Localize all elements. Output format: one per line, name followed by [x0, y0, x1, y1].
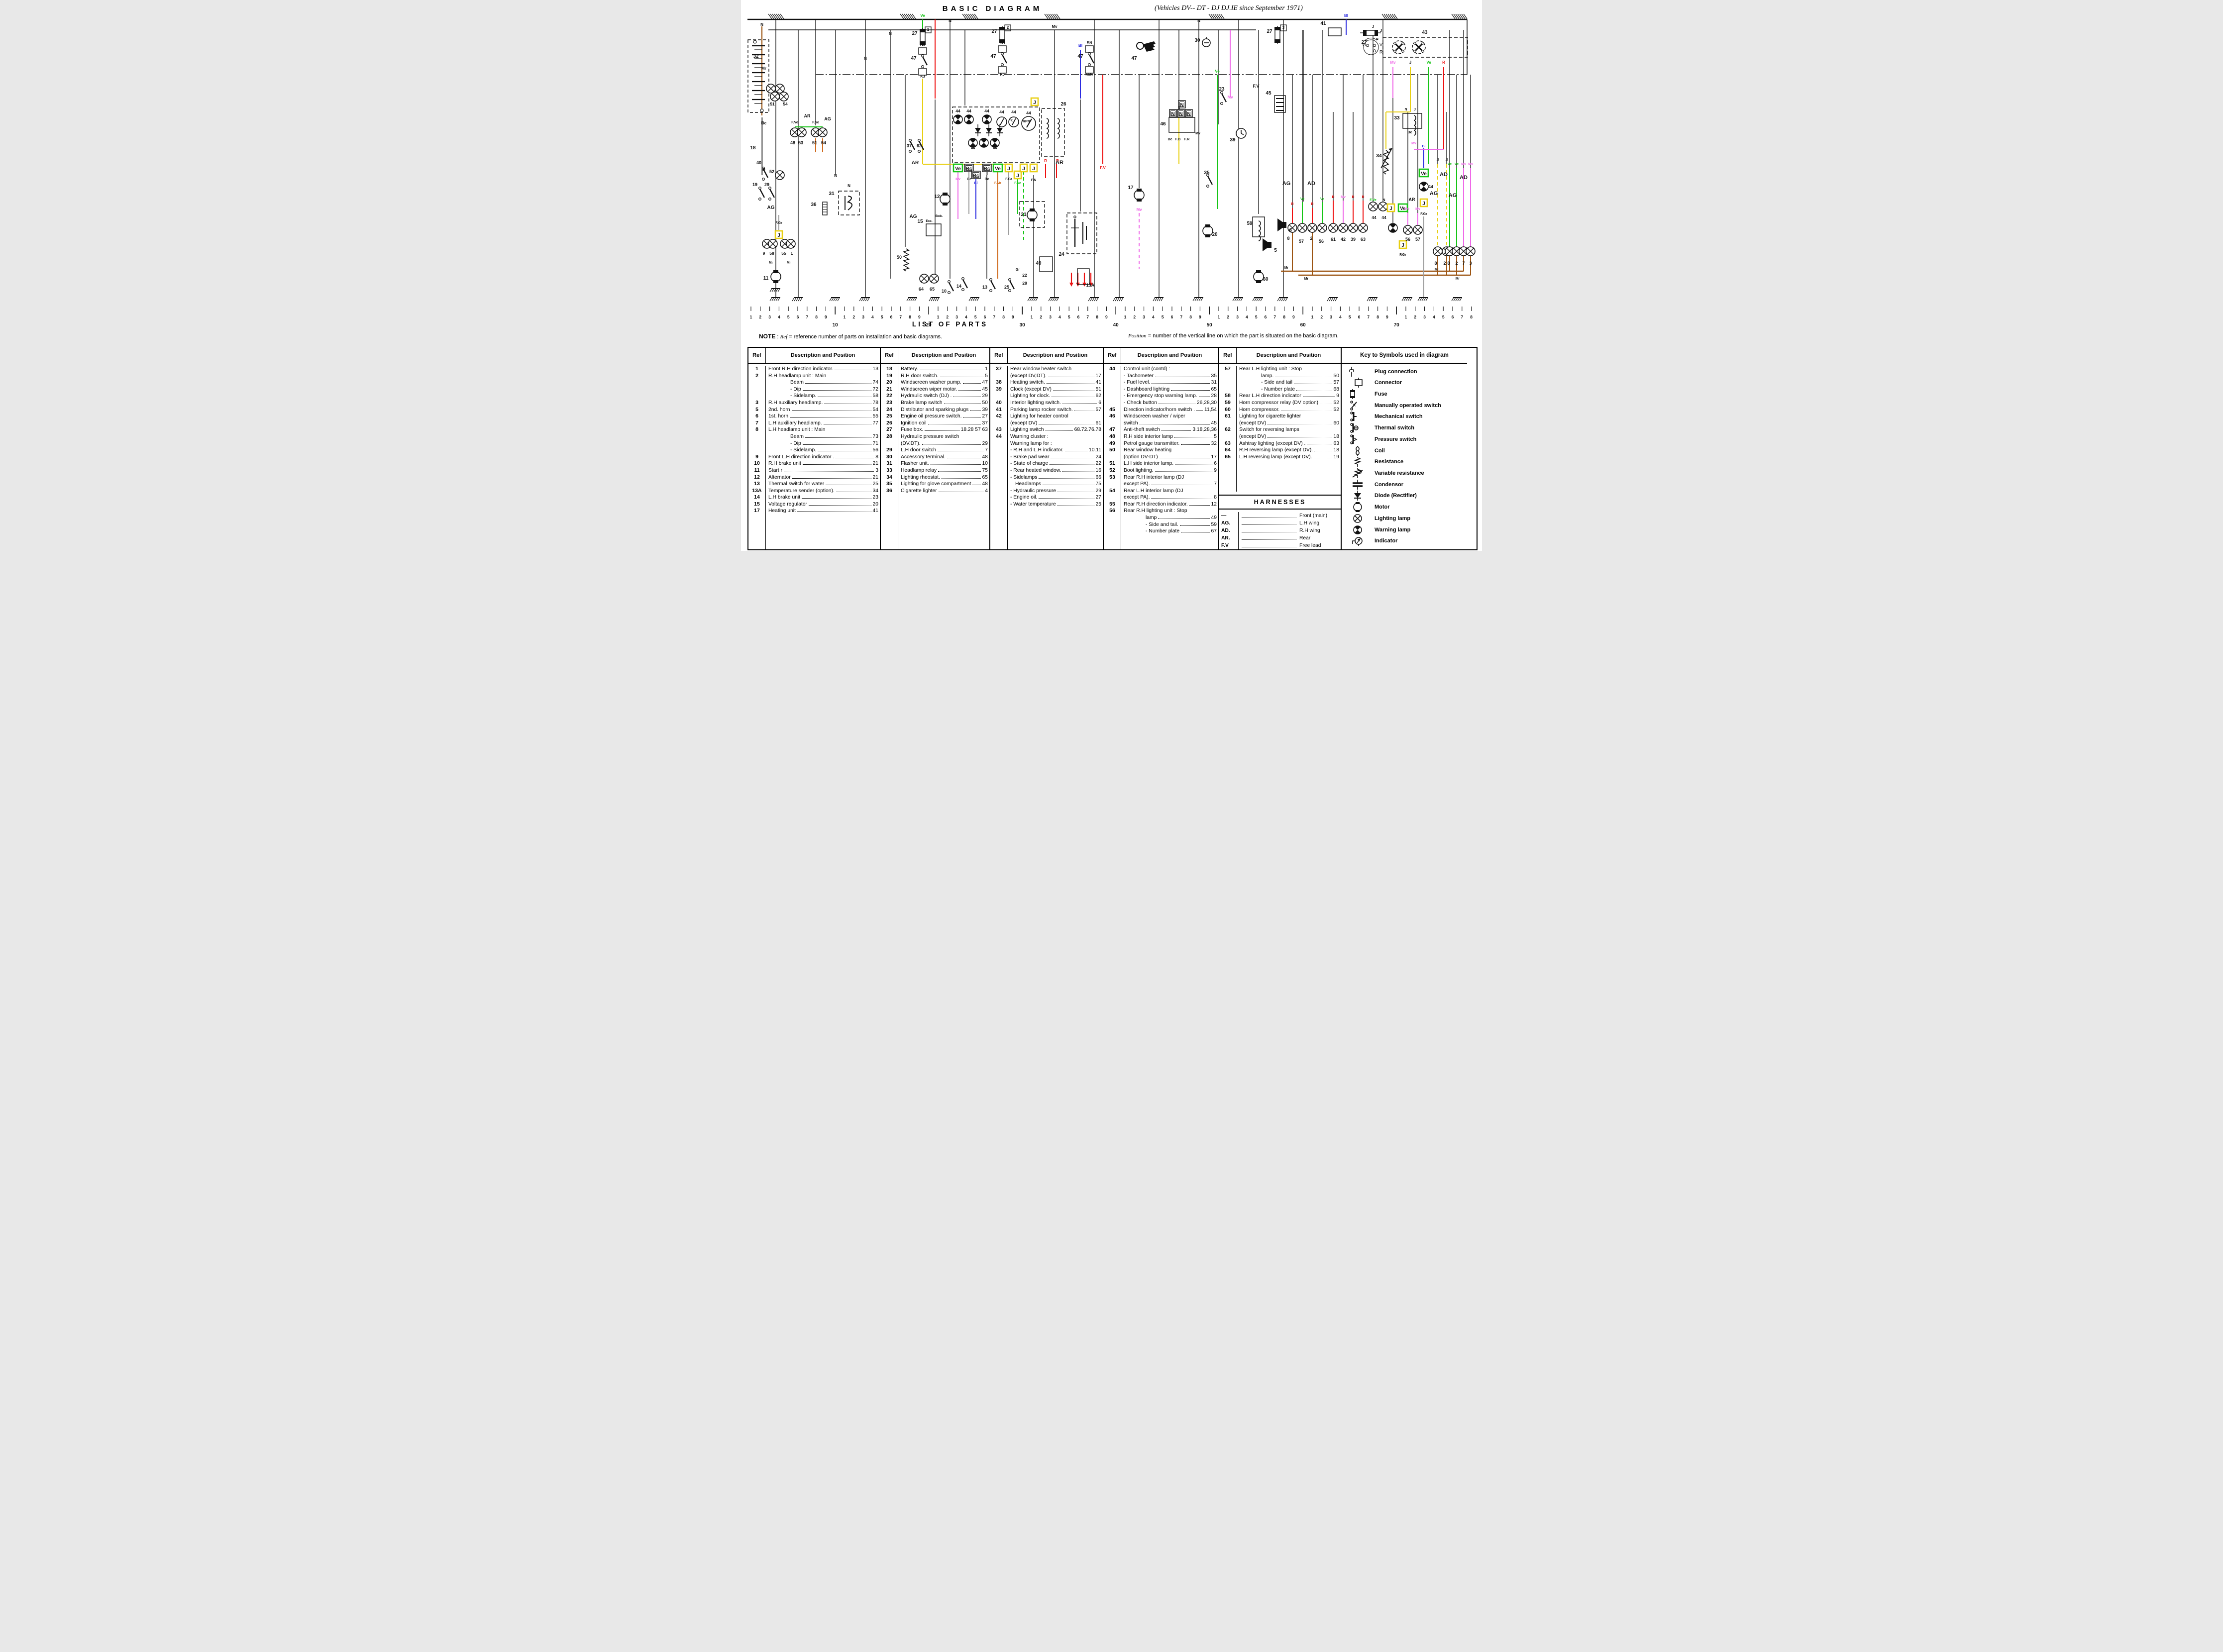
- symbol-label: Motor: [1375, 504, 1390, 510]
- svg-text:F.Gr: F.Gr: [775, 221, 782, 225]
- part-ref: 43: [990, 426, 1008, 433]
- svg-text:AG: AG: [767, 205, 775, 210]
- table-row: 63Ashtray lighting (except DV) .63: [1219, 440, 1341, 447]
- table-row: 26Ignition coil37: [881, 420, 989, 427]
- svg-text:AG: AG: [824, 116, 831, 121]
- svg-text:5: 5: [1442, 314, 1445, 319]
- basic-wiring-diagram: OVR°CRPMVeBcBcBcVeJJJJJJJVeVeJJNNNN1832M…: [741, 0, 1482, 329]
- svg-text:44: 44: [1372, 215, 1376, 220]
- table-row: 57Rear L.H lighting unit : Stoplamp.50- …: [1219, 366, 1341, 393]
- table-row: 9Front L.H direction indicator .8: [748, 454, 880, 461]
- table-row: 44Warning cluster :Warning lamp for :- R…: [990, 433, 1103, 508]
- svg-text:44: 44: [966, 108, 971, 113]
- part-description: Rear window heating(option DV-DT)17: [1121, 447, 1218, 460]
- part-description: Rear R.H interior lamp (DJexcept PA).7: [1121, 474, 1218, 488]
- svg-text:36: 36: [811, 202, 817, 207]
- svg-text:Ve: Ve: [1215, 69, 1220, 74]
- harness-row: AG.L.H wing: [1219, 519, 1341, 527]
- svg-text:2: 2: [1443, 261, 1446, 266]
- part-ref: 54: [1104, 488, 1121, 501]
- part-description: Horn compressor.52: [1237, 407, 1341, 413]
- table-row: 54Rear L.H interior lamp (DJexcept PA).8: [1104, 488, 1218, 501]
- svg-text:8: 8: [815, 314, 818, 319]
- svg-text:Bl: Bl: [1422, 145, 1426, 148]
- parts-column-4: RefDescription and Position44Control uni…: [1104, 348, 1219, 549]
- svg-text:8: 8: [1447, 261, 1450, 266]
- svg-text:9: 9: [918, 314, 921, 319]
- svg-text:R: R: [1352, 196, 1354, 199]
- harness-row: F.VFree lead: [1219, 542, 1341, 549]
- svg-text:2: 2: [852, 314, 855, 319]
- harness-row: AR.Rear: [1219, 534, 1341, 542]
- parts-column-3: RefDescription and Position37Rear window…: [990, 348, 1104, 549]
- table-row: 13Thermal switch for water25: [748, 481, 880, 488]
- svg-text:8: 8: [1434, 261, 1437, 266]
- svg-text:Mr: Mr: [787, 261, 791, 265]
- svg-text:Mv: Mv: [1341, 196, 1346, 199]
- svg-text:10: 10: [942, 289, 947, 294]
- plug-connection-icon: [1347, 367, 1375, 377]
- part-description: Ignition coil37: [898, 420, 989, 427]
- part-description: R.H brake unit21: [766, 460, 880, 467]
- svg-text:AR: AR: [1056, 160, 1063, 166]
- part-description: Accessory terminal.48: [898, 454, 989, 461]
- part-ref: 3: [748, 400, 766, 407]
- svg-text:1: 1: [1124, 314, 1127, 319]
- part-description: Fuse box.18.28 57 63: [898, 426, 989, 433]
- table-row: 24Distributor and sparking plugs39: [881, 407, 989, 413]
- symbol-row: Motor: [1347, 502, 1465, 513]
- table-row: 30Accessory terminal.48: [881, 454, 989, 461]
- svg-text:F.N: F.N: [920, 43, 926, 47]
- svg-text:N: N: [1197, 18, 1200, 23]
- part-description: Flasher unit.10: [898, 460, 989, 467]
- table-row: 47Anti-theft switch3.18,28,36: [1104, 426, 1218, 433]
- condensor-icon: [1347, 480, 1375, 490]
- part-description: Lighting for heater control(except DV)61: [1008, 413, 1103, 426]
- svg-text:5: 5: [881, 314, 883, 319]
- warning-lamp-icon: [1347, 525, 1375, 535]
- svg-text:49: 49: [1036, 261, 1042, 266]
- part-ref: 28: [881, 433, 898, 447]
- symbol-row: Coil: [1347, 445, 1465, 456]
- parts-column-header: RefDescription and Position: [1219, 348, 1341, 364]
- svg-text:4: 4: [871, 314, 874, 319]
- symbol-row: Pressure switch: [1347, 434, 1465, 444]
- symbol-label: Diode (Rectifier): [1375, 493, 1417, 499]
- svg-text:5: 5: [1068, 314, 1070, 319]
- svg-text:Mr: Mr: [1435, 268, 1439, 272]
- symbol-row: Indicator: [1347, 536, 1465, 546]
- part-ref: 63: [1219, 440, 1237, 447]
- table-row: 25Engine oil pressure switch.27: [881, 413, 989, 420]
- svg-text:7: 7: [1273, 314, 1276, 319]
- part-ref: 23: [881, 400, 898, 407]
- svg-text:3: 3: [1236, 314, 1239, 319]
- svg-text:6: 6: [1265, 314, 1267, 319]
- table-row: 64R.H reversing lamp (except DV).18: [1219, 447, 1341, 454]
- part-ref: 31: [881, 460, 898, 467]
- part-description: Headlamp relay75: [898, 467, 989, 474]
- svg-text:Ve: Ve: [1426, 60, 1431, 65]
- table-row: 18Battery.1: [881, 366, 989, 373]
- svg-text:R: R: [1442, 60, 1445, 65]
- part-description: Clock (except DV)51Lighting for clock.62: [1008, 386, 1103, 400]
- part-description: Lighting rheostat.65: [898, 474, 989, 481]
- svg-text:13: 13: [982, 285, 987, 290]
- table-row: 48R.H side interior lamp5: [1104, 433, 1218, 440]
- svg-text:1: 1: [1405, 314, 1407, 319]
- indicator-icon: [1347, 536, 1375, 546]
- diode-icon: [1347, 491, 1375, 501]
- part-description: Boot lighting.9: [1121, 467, 1218, 474]
- part-description: L.H auxiliary headlamp.77: [766, 420, 880, 427]
- position-note: Position = number of the vertical line o…: [1128, 333, 1339, 339]
- part-ref: 59: [1219, 400, 1237, 407]
- table-row: 14L.H brake unit23: [748, 494, 880, 501]
- svg-text:6: 6: [1077, 314, 1080, 319]
- svg-text:8: 8: [909, 314, 911, 319]
- part-ref: 50: [1104, 447, 1121, 460]
- svg-text:1: 1: [937, 314, 940, 319]
- table-row: 51L.H side interior lamp.6: [1104, 460, 1218, 467]
- svg-text:5: 5: [1162, 314, 1164, 319]
- svg-text:Ve: Ve: [1421, 171, 1427, 177]
- svg-text:AD: AD: [1440, 172, 1448, 178]
- part-description: Anti-theft switch3.18,28,36: [1121, 426, 1218, 433]
- svg-text:Bc: Bc: [984, 166, 990, 172]
- svg-text:7: 7: [1180, 314, 1182, 319]
- part-description: Rear window heater switch(except DV,DT).…: [1008, 366, 1103, 379]
- svg-text:Mv: Mv: [1468, 163, 1473, 166]
- svg-text:F.N: F.N: [1087, 41, 1092, 45]
- part-ref: 24: [881, 407, 898, 413]
- svg-text:V: V: [1379, 42, 1382, 47]
- svg-text:J: J: [1022, 166, 1025, 172]
- svg-text:J: J: [1372, 24, 1374, 29]
- svg-text:18: 18: [750, 145, 756, 151]
- svg-text:Bc: Bc: [761, 121, 767, 125]
- svg-text:56: 56: [1319, 239, 1324, 244]
- symbol-label: Lighting lamp: [1375, 516, 1410, 521]
- svg-text:F.Gr: F.Gr: [1005, 178, 1012, 181]
- svg-text:9: 9: [1105, 314, 1108, 319]
- svg-text:Mv: Mv: [1404, 207, 1409, 211]
- svg-text:27: 27: [1361, 40, 1367, 45]
- svg-text:3: 3: [862, 314, 864, 319]
- svg-text:8: 8: [1096, 314, 1098, 319]
- part-ref: 19: [881, 373, 898, 380]
- part-description: Lighting switch68.72.76.78: [1008, 426, 1103, 433]
- list-of-parts-table: RefDescription and Position1Front R.H di…: [747, 347, 1478, 550]
- svg-text:11: 11: [763, 276, 769, 281]
- part-description: 1st. horn55: [766, 413, 880, 420]
- part-description: 2nd. horn54: [766, 407, 880, 413]
- svg-text:55: 55: [781, 251, 786, 256]
- part-description: Rear L.H lighting unit : Stoplamp.50- Si…: [1237, 366, 1341, 393]
- svg-text:F.Gr: F.Gr: [1399, 253, 1406, 257]
- svg-text:2: 2: [946, 314, 949, 319]
- svg-text:F.N: F.N: [1031, 179, 1037, 182]
- part-ref: 62: [1219, 426, 1237, 440]
- harness-row: —Front (main): [1219, 512, 1341, 519]
- svg-text:R: R: [1291, 203, 1293, 206]
- svg-text:5: 5: [974, 314, 977, 319]
- svg-text:3: 3: [1049, 314, 1052, 319]
- svg-text:J: J: [1422, 201, 1425, 206]
- part-ref: 13: [748, 481, 766, 488]
- svg-text:Ve: Ve: [1455, 163, 1459, 166]
- svg-text:64: 64: [919, 287, 924, 292]
- svg-text:3: 3: [1282, 25, 1285, 30]
- part-description: Interior lighting switch.6: [1008, 400, 1103, 407]
- part-ref: 5: [748, 407, 766, 413]
- part-ref: 25: [881, 413, 898, 420]
- symbol-label: Manually operated switch: [1375, 403, 1441, 409]
- part-description: Rear R.H lighting unit : Stoplamp49- Sid…: [1121, 508, 1218, 534]
- svg-text:J: J: [1032, 166, 1035, 172]
- part-description: L.H brake unit23: [766, 494, 880, 501]
- table-row: 37Rear window heater switch(except DV,DT…: [990, 366, 1103, 379]
- part-ref: 14: [748, 494, 766, 501]
- svg-text:37: 37: [907, 143, 912, 148]
- svg-text:AG: AG: [1282, 181, 1291, 187]
- svg-text:N: N: [1187, 111, 1190, 117]
- parts-column-1: RefDescription and Position1Front R.H di…: [748, 348, 881, 549]
- part-description: Thermal switch for water25: [766, 481, 880, 488]
- table-row: 21Windscreen wiper motor.45: [881, 386, 989, 393]
- svg-text:9: 9: [825, 314, 827, 319]
- symbol-label: Fuse: [1375, 391, 1387, 397]
- part-ref: 44: [990, 433, 1008, 508]
- part-description: Voltage regulator20: [766, 501, 880, 508]
- svg-text:45: 45: [1266, 91, 1271, 96]
- key-to-symbols-column: Key to Symbols used in diagram Plug conn…: [1342, 348, 1467, 549]
- svg-text:3: 3: [1330, 314, 1332, 319]
- part-ref: 49: [1104, 440, 1121, 447]
- part-ref: 36: [881, 488, 898, 495]
- svg-text:24: 24: [1059, 252, 1064, 257]
- symbol-row: Plug connection: [1347, 366, 1465, 377]
- table-row: 62Switch for reversing lamps(except DV)1…: [1219, 426, 1341, 440]
- part-ref: 41: [990, 407, 1008, 413]
- svg-text:8: 8: [1002, 314, 1005, 319]
- svg-text:Gr: Gr: [1016, 268, 1020, 272]
- part-ref: 27: [881, 426, 898, 433]
- svg-text:7: 7: [1462, 261, 1465, 266]
- svg-text:F.N: F.N: [1000, 41, 1005, 45]
- symbol-label: Warning lamp: [1375, 527, 1410, 533]
- part-description: Rear L.H interior lamp (DJexcept PA).8: [1121, 488, 1218, 501]
- mechanical-switch-icon: [1347, 412, 1375, 421]
- part-ref: 18: [881, 366, 898, 373]
- svg-text:Ve: Ve: [920, 13, 925, 18]
- part-ref: 48: [1104, 433, 1121, 440]
- part-description: Windscreen wiper motor.45: [898, 386, 989, 393]
- parts-column-header: RefDescription and Position: [748, 348, 880, 364]
- svg-text:F.Ve: F.Ve: [812, 121, 819, 124]
- svg-text:20: 20: [1212, 232, 1218, 237]
- svg-text:42: 42: [1341, 237, 1346, 242]
- part-description: Ashtray lighting (except DV) .63: [1237, 440, 1341, 447]
- svg-text:44: 44: [1381, 215, 1386, 220]
- svg-text:Bc: Bc: [1168, 138, 1172, 141]
- svg-text:2: 2: [1455, 261, 1458, 266]
- table-row: 42Lighting for heater control(except DV)…: [990, 413, 1103, 426]
- svg-text:19: 19: [752, 182, 757, 187]
- part-description: Heating switch.41: [1008, 379, 1103, 386]
- part-description: R.H auxiliary headlamp.78: [766, 400, 880, 407]
- svg-text:50: 50: [897, 255, 902, 260]
- table-row: 53Rear R.H interior lamp (DJexcept PA).7: [1104, 474, 1218, 488]
- svg-text:4: 4: [1152, 314, 1155, 319]
- svg-text:2: 2: [1227, 314, 1229, 319]
- part-description: Petrol gauge transmitter.32: [1121, 440, 1218, 447]
- svg-text:Bob.: Bob.: [936, 214, 943, 218]
- svg-text:40: 40: [756, 160, 761, 165]
- table-row: 41Parking lamp rocker switch.57: [990, 407, 1103, 413]
- svg-text:1: 1: [927, 27, 930, 32]
- svg-text:60: 60: [1263, 277, 1269, 282]
- svg-text:27: 27: [1267, 29, 1272, 34]
- svg-text:F.B: F.B: [1175, 138, 1181, 141]
- svg-text:R: R: [1311, 203, 1313, 206]
- svg-text:1: 1: [1218, 314, 1220, 319]
- part-ref: 34: [881, 474, 898, 481]
- part-ref: 26: [881, 420, 898, 427]
- harnesses-section: HARNESSES—Front (main)AG.L.H wingAD.R.H …: [1219, 495, 1341, 549]
- svg-text:39: 39: [1351, 237, 1356, 242]
- svg-text:AG: AG: [1430, 191, 1438, 197]
- svg-text:4: 4: [1339, 314, 1342, 319]
- table-row: 20Windscreen washer pump.47: [881, 379, 989, 386]
- svg-text:AD: AD: [1460, 175, 1468, 181]
- part-ref: 7: [748, 420, 766, 427]
- part-ref: 29: [881, 447, 898, 454]
- part-ref: 8: [748, 426, 766, 453]
- part-description: R.H headlamp unit : MainBeam74- Dip72- S…: [766, 373, 880, 400]
- part-description: Hydraulic switch (DJ) .29: [898, 393, 989, 400]
- symbol-label: Indicator: [1375, 538, 1397, 544]
- svg-text:J: J: [1033, 100, 1036, 105]
- svg-text:2: 2: [759, 314, 761, 319]
- svg-text:47: 47: [911, 56, 917, 61]
- fuse-icon: [1347, 389, 1375, 399]
- part-ref: 22: [881, 393, 898, 400]
- svg-text:54: 54: [821, 140, 826, 145]
- svg-text:44: 44: [1026, 110, 1031, 115]
- svg-text:47: 47: [1131, 56, 1137, 61]
- svg-text:41: 41: [1320, 21, 1326, 26]
- part-description: Lighting for cigarette lighter(except DV…: [1237, 413, 1341, 426]
- svg-text:N: N: [1179, 111, 1182, 117]
- symbol-row: Variable resistance: [1347, 468, 1465, 478]
- table-row: 23Brake lamp switch50: [881, 400, 989, 407]
- svg-text:Bc: Bc: [985, 178, 989, 181]
- part-ref: 15: [748, 501, 766, 508]
- part-description: Parking lamp rocker switch.57: [1008, 407, 1103, 413]
- svg-text:Bl: Bl: [974, 182, 978, 185]
- svg-text:61: 61: [1331, 237, 1336, 242]
- part-ref: 60: [1219, 407, 1237, 413]
- svg-text:70: 70: [1394, 322, 1400, 328]
- svg-text:44: 44: [999, 109, 1004, 114]
- symbol-label: Resistance: [1375, 459, 1403, 465]
- parts-column-header: RefDescription and Position: [990, 348, 1103, 364]
- svg-text:3: 3: [955, 314, 958, 319]
- svg-text:5: 5: [1349, 314, 1351, 319]
- svg-text:29: 29: [764, 182, 769, 187]
- part-description: Engine oil pressure switch.27: [898, 413, 989, 420]
- lighting-lamp-icon: [1347, 514, 1375, 523]
- svg-text:58: 58: [769, 251, 774, 256]
- svg-text:5: 5: [787, 314, 790, 319]
- svg-text:3: 3: [1423, 314, 1426, 319]
- svg-text:F.Ve: F.Ve: [791, 121, 798, 124]
- part-ref: 46: [1104, 413, 1121, 426]
- table-row: 49Petrol gauge transmitter.32: [1104, 440, 1218, 447]
- svg-text:N: N: [834, 174, 837, 178]
- part-ref: 21: [881, 386, 898, 393]
- svg-text:AR: AR: [912, 160, 919, 166]
- svg-text:8: 8: [1189, 314, 1192, 319]
- table-row: 43Lighting switch68.72.76.78: [990, 426, 1103, 433]
- svg-text:F.Gr: F.Gr: [1420, 212, 1427, 216]
- svg-text:4: 4: [778, 314, 780, 319]
- symbol-row: Thermal switch: [1347, 423, 1465, 433]
- svg-text:51: 51: [812, 140, 817, 145]
- part-description: L.H headlamp unit : MainBeam73- Dip71- S…: [766, 426, 880, 453]
- svg-text:6: 6: [1171, 314, 1173, 319]
- svg-text:R: R: [762, 168, 765, 172]
- table-row: 65L.H reversing lamp (except DV).19: [1219, 454, 1341, 461]
- svg-text:2: 2: [1040, 314, 1042, 319]
- part-description: Temperature sender (option).34: [766, 488, 880, 495]
- table-row: 33Headlamp relay75: [881, 467, 989, 474]
- part-description: L.H side interior lamp.6: [1121, 460, 1218, 467]
- part-description: Lighting for glove compartment48: [898, 481, 989, 488]
- part-description: Front L.H direction indicator .8: [766, 454, 880, 461]
- svg-text:6: 6: [890, 314, 893, 319]
- part-description: L.H reversing lamp (except DV).19: [1237, 454, 1341, 461]
- part-ref: 33: [881, 467, 898, 474]
- table-row: 59Horn compressor relay (DV option)52: [1219, 400, 1341, 407]
- part-ref: 9: [748, 454, 766, 461]
- svg-text:34: 34: [1376, 153, 1382, 159]
- table-row: 19R.H door switch.5: [881, 373, 989, 380]
- svg-text:Mv: Mv: [1136, 207, 1142, 212]
- svg-text:Ve: Ve: [955, 166, 961, 172]
- table-row: 3R.H auxiliary headlamp.78: [748, 400, 880, 407]
- part-description: Alternator21: [766, 474, 880, 481]
- part-description: Warning cluster :Warning lamp for :- R.H…: [1008, 433, 1103, 508]
- table-row: 13ATemperature sender (option).34: [748, 488, 880, 495]
- symbol-row: Resistance: [1347, 457, 1465, 467]
- note-line: NOTE : Ref = reference number of parts o…: [759, 333, 942, 340]
- parts-column-2: RefDescription and Position18Battery.119…: [881, 348, 990, 549]
- part-ref: 38: [990, 379, 1008, 386]
- motor-icon: [1347, 502, 1375, 512]
- svg-text:3: 3: [768, 314, 771, 319]
- svg-text:21: 21: [1021, 212, 1027, 217]
- svg-text:13A: 13A: [1086, 283, 1095, 288]
- svg-text:J: J: [1380, 28, 1382, 33]
- harness-row: AD.R.H wing: [1219, 527, 1341, 534]
- svg-text:N: N: [864, 56, 867, 61]
- svg-text:1: 1: [750, 314, 752, 319]
- svg-text:N: N: [1171, 111, 1174, 117]
- svg-text:N: N: [1404, 108, 1407, 111]
